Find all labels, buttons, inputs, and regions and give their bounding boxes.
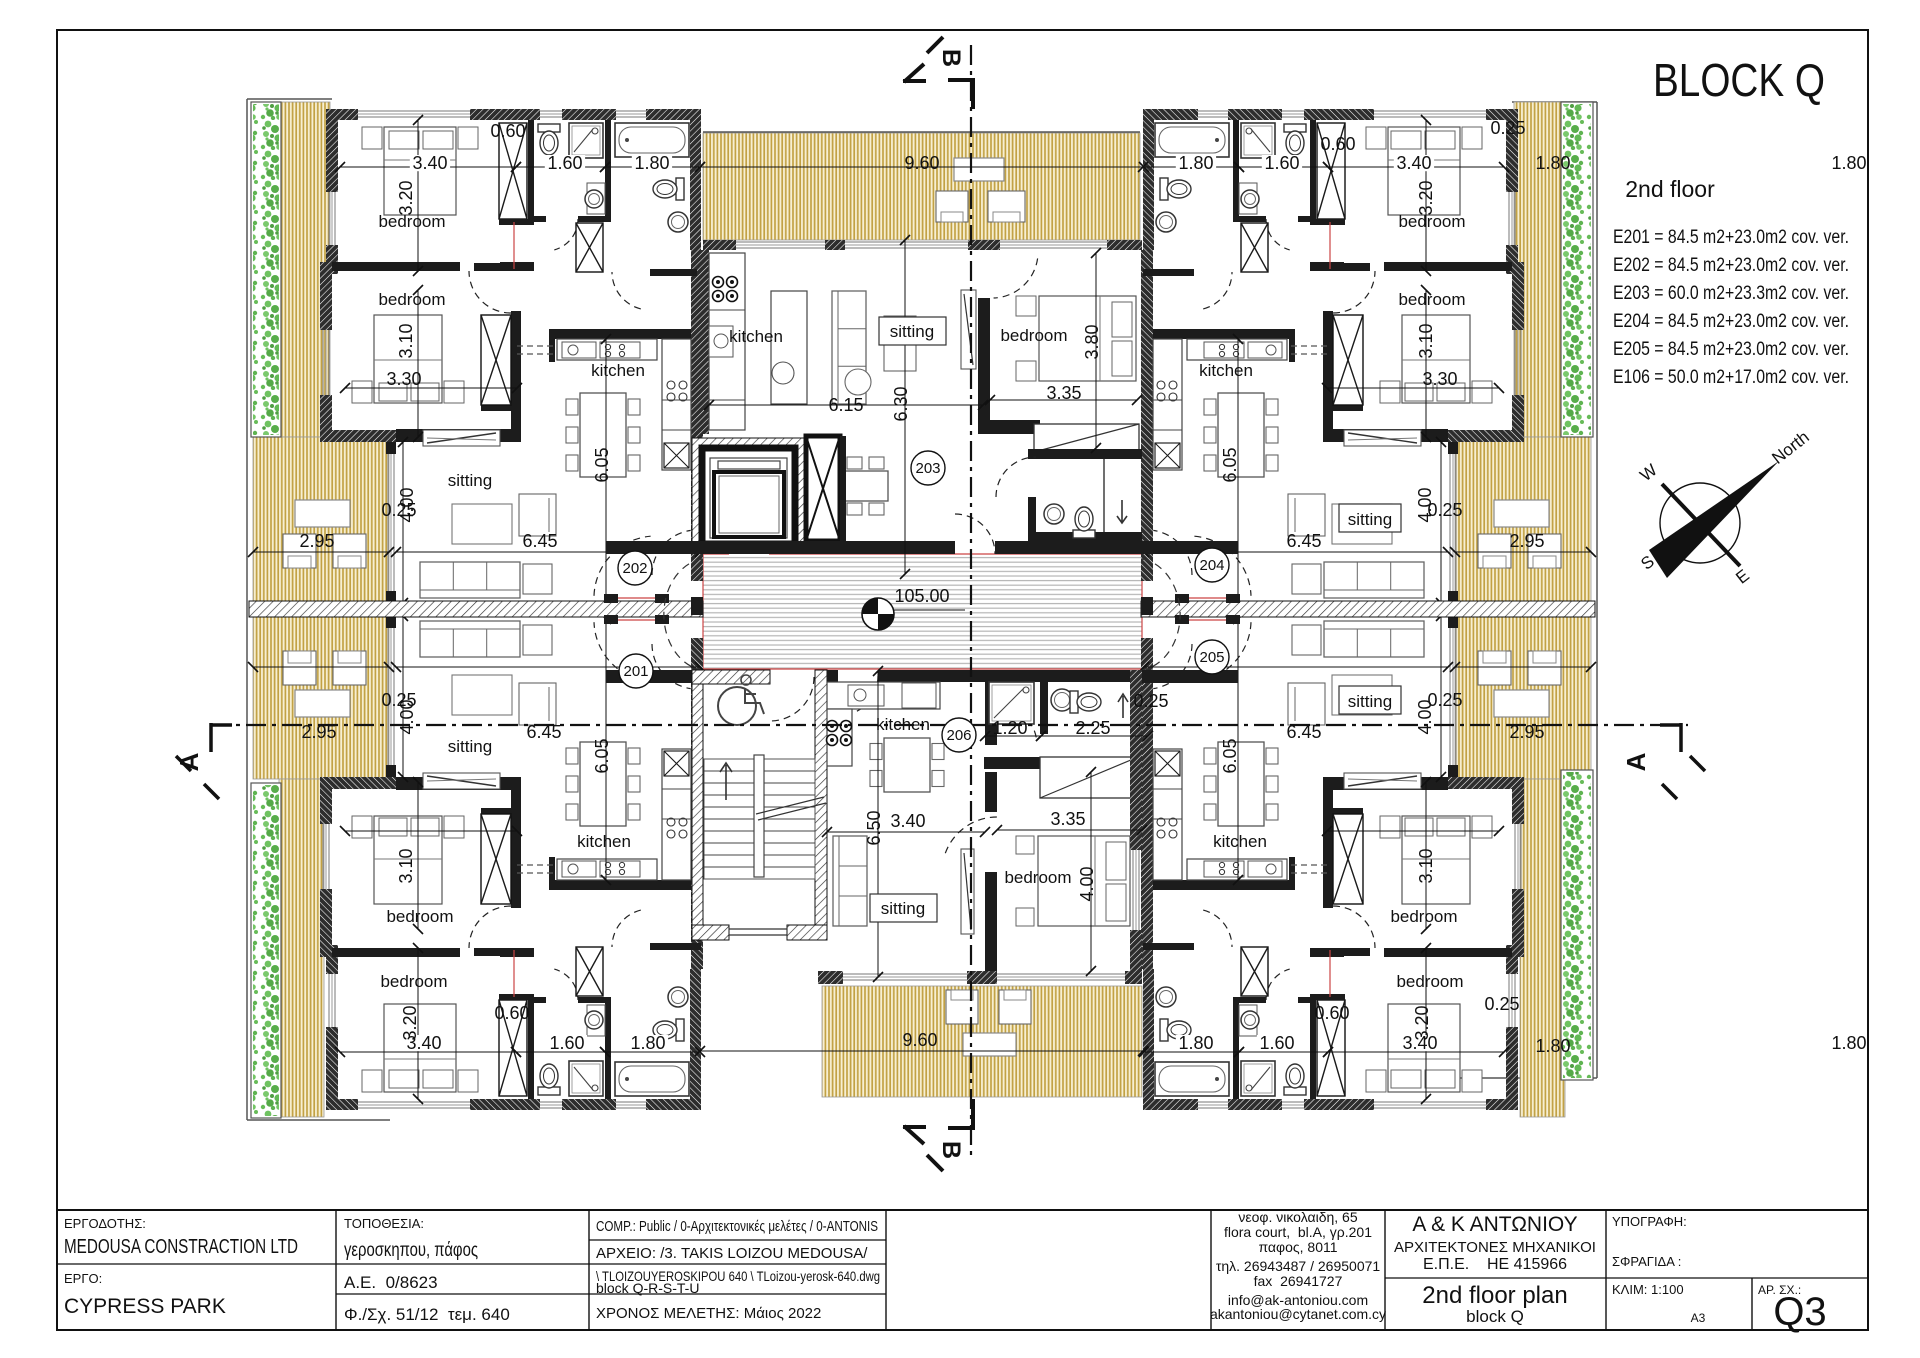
svg-text:sitting: sitting <box>881 899 925 918</box>
svg-text:1.80: 1.80 <box>1535 1036 1570 1056</box>
svg-text:kitchen: kitchen <box>1199 361 1253 380</box>
svg-text:4.00: 4.00 <box>397 699 417 734</box>
svg-text:bedroom: bedroom <box>1390 907 1457 926</box>
svg-text:sitting: sitting <box>448 737 492 756</box>
svg-text:fax 26941727: fax 26941727 <box>1254 1273 1343 1289</box>
svg-text:bedroom: bedroom <box>1004 868 1071 887</box>
svg-text:6.05: 6.05 <box>592 738 612 773</box>
svg-text:bedroom: bedroom <box>1000 326 1067 345</box>
svg-text:3.35: 3.35 <box>1050 809 1085 829</box>
svg-text:B: B <box>937 49 965 67</box>
svg-text:Q3: Q3 <box>1773 1290 1826 1334</box>
svg-text:3.20: 3.20 <box>400 1005 420 1040</box>
svg-text:3.20: 3.20 <box>1416 180 1436 215</box>
svg-text:6.15: 6.15 <box>828 395 863 415</box>
svg-text:ΕΡΓΟΔΟΤΗΣ:: ΕΡΓΟΔΟΤΗΣ: <box>64 1216 146 1231</box>
svg-text:τηλ. 26943487 / 26950071: τηλ. 26943487 / 26950071 <box>1216 1258 1381 1274</box>
svg-text:kitchen: kitchen <box>876 715 930 734</box>
svg-text:205: 205 <box>1199 649 1224 666</box>
svg-text:E204 = 84.5 m2+23.0m2 cov. ver: E204 = 84.5 m2+23.0m2 cov. ver. <box>1613 311 1849 332</box>
svg-text:1.60: 1.60 <box>549 1033 584 1053</box>
svg-text:4.00: 4.00 <box>397 487 417 522</box>
svg-text:bedroom: bedroom <box>1398 290 1465 309</box>
svg-text:2nd floor plan: 2nd floor plan <box>1422 1282 1567 1309</box>
svg-text:0.60: 0.60 <box>494 1003 529 1023</box>
svg-text:3.40: 3.40 <box>890 811 925 831</box>
svg-text:block Q-R-S-T-U: block Q-R-S-T-U <box>596 1280 699 1296</box>
svg-text:E201 = 84.5 m2+23.0m2 cov. ver: E201 = 84.5 m2+23.0m2 cov. ver. <box>1613 227 1849 248</box>
svg-text:0.25: 0.25 <box>1484 994 1519 1014</box>
svg-text:0.60: 0.60 <box>1320 134 1355 154</box>
svg-text:bedroom: bedroom <box>378 290 445 309</box>
svg-text:bedroom: bedroom <box>1398 212 1465 231</box>
svg-text:B: B <box>937 1141 965 1159</box>
svg-text:203: 203 <box>915 460 940 477</box>
svg-text:E205 = 84.5 m2+23.0m2 cov. ver: E205 = 84.5 m2+23.0m2 cov. ver. <box>1613 339 1849 360</box>
svg-text:ΥΠΟΓΡΑΦΗ:: ΥΠΟΓΡΑΦΗ: <box>1612 1214 1687 1229</box>
svg-text:9.60: 9.60 <box>902 1030 937 1050</box>
svg-text:3.40: 3.40 <box>412 153 447 173</box>
svg-text:kitchen: kitchen <box>577 832 631 851</box>
svg-text:ΧΡΟΝΟΣ ΜΕΛΕΤΗΣ: Μάιος 2022: ΧΡΟΝΟΣ ΜΕΛΕΤΗΣ: Μάιος 2022 <box>596 1305 821 1322</box>
svg-text:1.80: 1.80 <box>1535 153 1570 173</box>
svg-text:Ε.Π.Ε. ΗΕ 415966: Ε.Π.Ε. ΗΕ 415966 <box>1423 1256 1567 1273</box>
svg-text:1.80: 1.80 <box>1178 153 1213 173</box>
svg-text:6.45: 6.45 <box>1286 722 1321 742</box>
svg-text:1.80: 1.80 <box>1831 1033 1866 1053</box>
svg-text:3.10: 3.10 <box>396 323 416 358</box>
svg-text:1.80: 1.80 <box>630 1033 665 1053</box>
svg-text:6.45: 6.45 <box>526 722 561 742</box>
svg-text:4.00: 4.00 <box>1077 866 1097 901</box>
svg-text:E202 = 84.5 m2+23.0m2 cov. ver: E202 = 84.5 m2+23.0m2 cov. ver. <box>1613 255 1849 276</box>
svg-text:bedroom: bedroom <box>380 972 447 991</box>
svg-text:4.00: 4.00 <box>1415 487 1435 522</box>
svg-text:3.80: 3.80 <box>1082 324 1102 359</box>
svg-text:MEDOUSA CONSTRACTION LTD: MEDOUSA CONSTRACTION LTD <box>64 1236 298 1258</box>
svg-text:3.40: 3.40 <box>1396 153 1431 173</box>
svg-text:3.20: 3.20 <box>396 180 416 215</box>
svg-text:3.10: 3.10 <box>396 848 416 883</box>
svg-text:γεροσκηπου, πάφος: γεροσκηπου, πάφος <box>344 1240 478 1261</box>
svg-text:E203 = 60.0 m2+23.3m2 cov. ver: E203 = 60.0 m2+23.3m2 cov. ver. <box>1613 283 1849 304</box>
svg-text:2.95: 2.95 <box>1509 531 1544 551</box>
svg-text:1.80: 1.80 <box>634 153 669 173</box>
svg-text:6.30: 6.30 <box>891 386 911 421</box>
svg-text:Α.Ε. 0/8623: Α.Ε. 0/8623 <box>344 1273 438 1292</box>
svg-text:2.95: 2.95 <box>301 722 336 742</box>
svg-text:2.25: 2.25 <box>1075 718 1110 738</box>
svg-text:1.60: 1.60 <box>547 153 582 173</box>
svg-text:0.25: 0.25 <box>1490 118 1525 138</box>
svg-text:2.95: 2.95 <box>1509 722 1544 742</box>
svg-text:bedroom: bedroom <box>386 907 453 926</box>
svg-text:kitchen: kitchen <box>591 361 645 380</box>
svg-text:1.80: 1.80 <box>1831 153 1866 173</box>
svg-text:A3: A3 <box>1691 1311 1706 1325</box>
svg-text:ΣΦΡΑΓΙΔΑ :: ΣΦΡΑΓΙΔΑ : <box>1612 1254 1681 1269</box>
svg-text:6.45: 6.45 <box>1286 531 1321 551</box>
svg-text:A: A <box>1621 752 1651 771</box>
svg-text:105.00: 105.00 <box>894 586 949 606</box>
svg-text:0.25: 0.25 <box>1133 691 1168 711</box>
svg-text:ΑΡΧΕΙΟ: /3. TAKIS LOIZOU MEDOU: ΑΡΧΕΙΟ: /3. TAKIS LOIZOU MEDOUSA/ <box>596 1245 868 1262</box>
svg-text:ΕΡΓΟ:: ΕΡΓΟ: <box>64 1271 102 1286</box>
svg-text:3.30: 3.30 <box>1422 369 1457 389</box>
svg-text:2nd floor: 2nd floor <box>1625 176 1715 202</box>
svg-text:1.60: 1.60 <box>1264 153 1299 173</box>
svg-text:6.05: 6.05 <box>592 447 612 482</box>
svg-text:206: 206 <box>946 727 971 744</box>
svg-text:0.60: 0.60 <box>1314 1003 1349 1023</box>
svg-text:ΤΟΠΟΘΕΣΙΑ:: ΤΟΠΟΘΕΣΙΑ: <box>344 1216 424 1231</box>
svg-text:1.20: 1.20 <box>992 718 1027 738</box>
svg-text:6.45: 6.45 <box>522 531 557 551</box>
svg-text:6.05: 6.05 <box>1220 738 1240 773</box>
svg-text:204: 204 <box>1199 557 1224 574</box>
svg-text:2.95: 2.95 <box>299 531 334 551</box>
svg-text:3.35: 3.35 <box>1046 383 1081 403</box>
svg-text:201: 201 <box>623 663 648 680</box>
svg-text:Α & Κ ΑΝΤΩΝΙΟΥ: Α & Κ ΑΝΤΩΝΙΟΥ <box>1412 1213 1577 1236</box>
svg-text:BLOCK Q: BLOCK Q <box>1653 54 1825 106</box>
svg-text:Φ./Σχ. 51/12 τεμ. 640: Φ./Σχ. 51/12 τεμ. 640 <box>344 1305 510 1324</box>
svg-text:6.50: 6.50 <box>864 810 884 845</box>
svg-text:COMP.: Public / 0-Αρχιτεκτονικ: COMP.: Public / 0-Αρχιτεκτονικές μελέτες… <box>596 1218 878 1235</box>
svg-text:0.60: 0.60 <box>490 121 525 141</box>
svg-text:sitting: sitting <box>1348 510 1392 529</box>
svg-text:block Q: block Q <box>1466 1307 1524 1326</box>
svg-text:3.10: 3.10 <box>1416 848 1436 883</box>
svg-text:akantoniou@cytanet.com.cy: akantoniou@cytanet.com.cy <box>1210 1306 1386 1322</box>
svg-text:kitchen: kitchen <box>729 327 783 346</box>
svg-text:bedroom: bedroom <box>378 212 445 231</box>
svg-text:flora court, bl.A, γρ.201: flora court, bl.A, γρ.201 <box>1224 1224 1372 1240</box>
svg-text:kitchen: kitchen <box>1213 832 1267 851</box>
svg-text:sitting: sitting <box>890 322 934 341</box>
svg-text:3.30: 3.30 <box>386 369 421 389</box>
svg-text:9.60: 9.60 <box>904 153 939 173</box>
svg-text:1.80: 1.80 <box>1178 1033 1213 1053</box>
svg-text:sitting: sitting <box>1348 692 1392 711</box>
svg-text:νεοφ. νικολαιδη, 65: νεοφ. νικολαιδη, 65 <box>1238 1209 1357 1225</box>
svg-text:sitting: sitting <box>448 471 492 490</box>
svg-text:1.60: 1.60 <box>1259 1033 1294 1053</box>
svg-text:202: 202 <box>622 560 647 577</box>
svg-text:E106 = 50.0 m2+17.0m2 cov. ver: E106 = 50.0 m2+17.0m2 cov. ver. <box>1613 367 1849 388</box>
svg-text:ΚΛΙΜ: 1:100: ΚΛΙΜ: 1:100 <box>1612 1282 1684 1297</box>
svg-text:ΑΡΧΙΤΕΚΤΟΝΕΣ ΜΗΧΑΝΙΚΟΙ: ΑΡΧΙΤΕΚΤΟΝΕΣ ΜΗΧΑΝΙΚΟΙ <box>1394 1239 1596 1256</box>
svg-text:bedroom: bedroom <box>1396 972 1463 991</box>
svg-text:3.10: 3.10 <box>1416 323 1436 358</box>
svg-text:CYPRESS PARK: CYPRESS PARK <box>64 1295 226 1318</box>
svg-text:παφος, 8011: παφος, 8011 <box>1258 1239 1337 1255</box>
svg-text:3.20: 3.20 <box>1412 1005 1432 1040</box>
svg-text:4.00: 4.00 <box>1415 699 1435 734</box>
svg-text:6.05: 6.05 <box>1220 447 1240 482</box>
